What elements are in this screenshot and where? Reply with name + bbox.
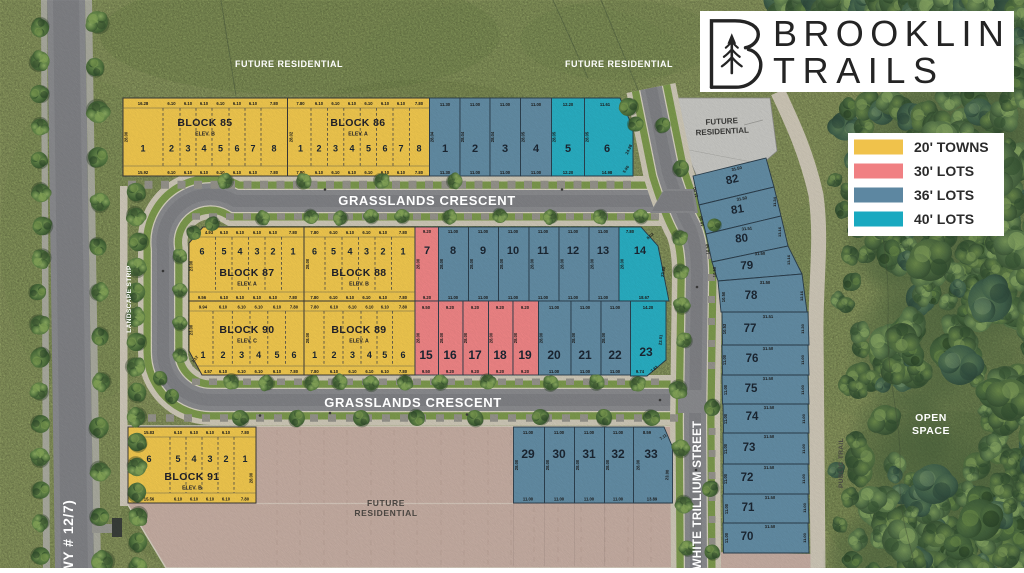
svg-text:LANDSCAPE STRIP: LANDSCAPE STRIP	[126, 265, 133, 333]
svg-text:30' LOTS: 30' LOTS	[914, 163, 974, 179]
svg-text:FUTURE RESIDENTIAL: FUTURE RESIDENTIAL	[565, 59, 673, 69]
svg-text:OPEN: OPEN	[915, 412, 947, 424]
svg-text:GRASSLANDS CRESCENT: GRASSLANDS CRESCENT	[324, 395, 502, 410]
svg-text:40' LOTS: 40' LOTS	[914, 211, 974, 227]
svg-text:36' LOTS: 36' LOTS	[914, 187, 974, 203]
svg-text:WHITE TRILLIUM STREET: WHITE TRILLIUM STREET	[692, 421, 704, 568]
svg-text:20' TOWNS: 20' TOWNS	[914, 139, 989, 155]
svg-text:PUBLIC TRAIL: PUBLIC TRAIL	[838, 438, 845, 488]
svg-text:BROOKLIN: BROOKLIN	[773, 13, 1010, 54]
svg-text:TRAILS: TRAILS	[773, 50, 945, 91]
svg-text:SPACE: SPACE	[912, 425, 950, 437]
svg-text:GRASSLANDS CRESCENT: GRASSLANDS CRESCENT	[338, 193, 516, 208]
svg-text:FUTURE RESIDENTIAL: FUTURE RESIDENTIAL	[235, 59, 343, 69]
svg-text:(HWY # 12/7): (HWY # 12/7)	[60, 500, 76, 568]
